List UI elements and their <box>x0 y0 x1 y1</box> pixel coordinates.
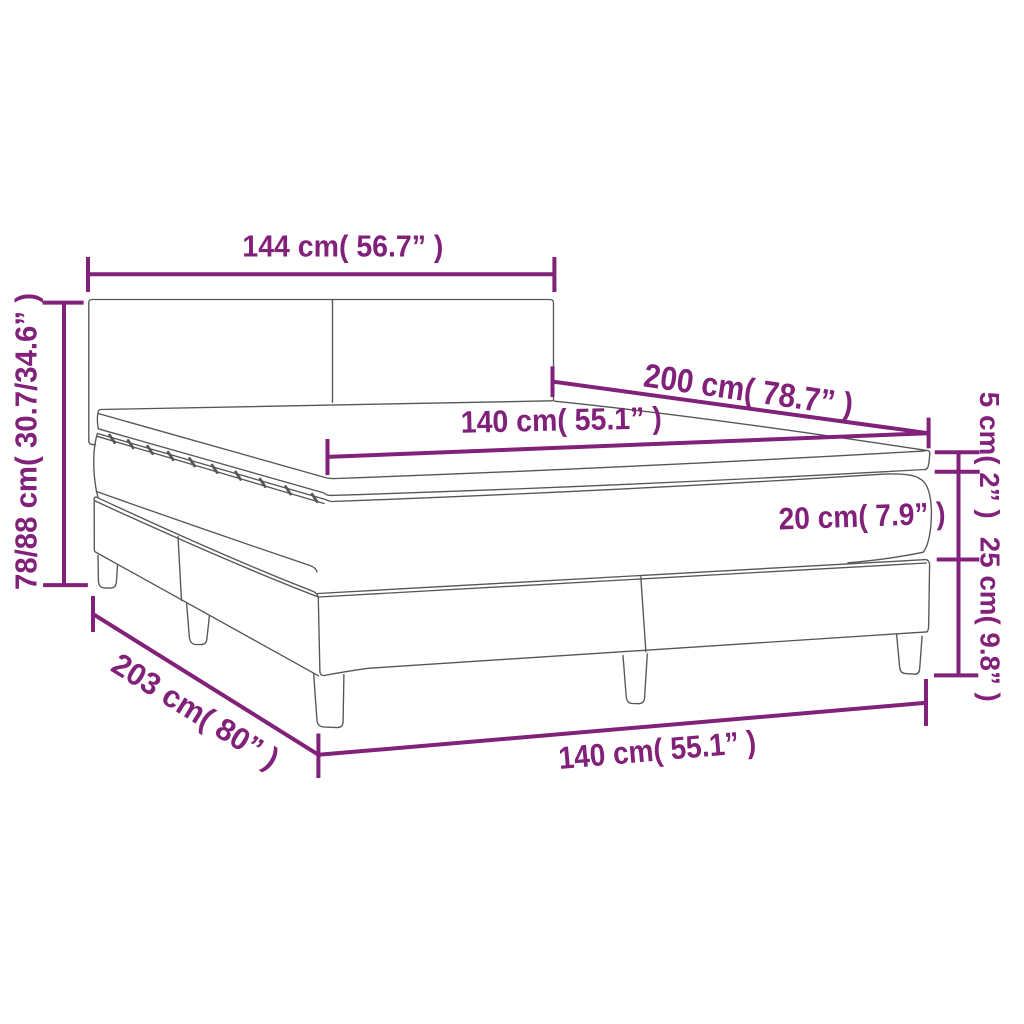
svg-text:144 cm( 56.7” ): 144 cm( 56.7” ) <box>242 229 443 264</box>
svg-text:20 cm( 7.9” ): 20 cm( 7.9” ) <box>778 496 946 537</box>
svg-text:25 cm( 9.8” ): 25 cm( 9.8” ) <box>975 537 1006 702</box>
svg-text:140 cm( 55.1” ): 140 cm( 55.1” ) <box>460 400 662 440</box>
svg-text:78/88 cm( 30.7/34.6” ): 78/88 cm( 30.7/34.6” ) <box>9 293 44 590</box>
svg-text:5 cm( 2” ): 5 cm( 2” ) <box>974 392 1005 519</box>
